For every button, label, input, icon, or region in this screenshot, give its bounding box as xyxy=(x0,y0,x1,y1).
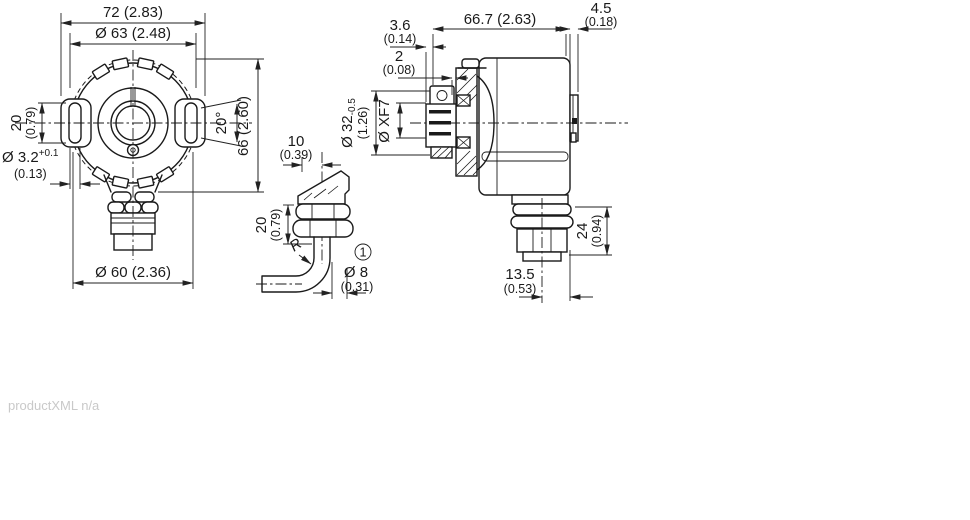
top-screw xyxy=(462,59,479,68)
dim-gap-in: (0.08) xyxy=(383,63,416,77)
technical-drawing-page: 72 (2.83) Ø 63 (2.48) 20 (0.79) Ø 3.2+0.… xyxy=(0,0,970,520)
encoder-body-side xyxy=(479,58,570,195)
dim-cable-dia-in: (0.31) xyxy=(341,280,374,294)
dim-connector-height-mm: 24 xyxy=(574,223,591,240)
dim-connector-height: 24 (0.94) xyxy=(569,207,612,255)
dim-slot-width-in: (0.13) xyxy=(14,167,47,181)
side-view: 66.7 (2.63) 4.5 (0.18) 3.6 (0.14) 2 (0.0… xyxy=(339,0,628,303)
dim-slot-angle-label: 20° xyxy=(213,112,230,135)
dim-slot-length-mm: 20 xyxy=(8,115,25,132)
dim-flange-circle-label: Ø 63 (2.48) xyxy=(95,25,171,42)
dim-cable-offset: 10 (0.39) xyxy=(280,133,341,172)
callout-1-marker: 1 xyxy=(355,244,371,260)
dim-cable-offset-in: (0.39) xyxy=(280,148,313,162)
dim-overall-height-label: 66 (2.60) xyxy=(235,96,252,156)
dim-bore-dia: Ø XF7 xyxy=(376,99,426,142)
dim-hub-dia-in: (1.26) xyxy=(356,107,370,140)
dim-body-dia-label: Ø 60 (2.36) xyxy=(95,264,171,281)
dim-cable-dia-mm: Ø 8 xyxy=(344,264,368,281)
rear-connector xyxy=(570,95,578,142)
product-xml-note: productXML n/a xyxy=(8,398,99,413)
front-view: 72 (2.83) Ø 63 (2.48) 20 (0.79) Ø 3.2+0.… xyxy=(2,4,264,289)
bearing-bottom xyxy=(457,137,470,148)
dim-rear-depth-in: (0.18) xyxy=(585,15,618,29)
dim-connector-height-in: (0.94) xyxy=(590,215,604,248)
dim-gland-length-in: (0.79) xyxy=(269,209,283,242)
cable-gland-nuts xyxy=(293,204,353,237)
dim-bore-dia-label: Ø XF7 xyxy=(376,99,393,142)
mounting-flange-section xyxy=(456,68,477,176)
callout-1-number: 1 xyxy=(360,246,367,260)
dim-overall-depth-label: 66.7 (2.63) xyxy=(464,11,537,28)
dim-connector-offset-mm: 13.5 xyxy=(505,266,534,283)
cable-bend-detail: R 1 10 (0.39) 20 (0.79) Ø 8 xyxy=(253,133,373,299)
bearing-top xyxy=(457,95,470,106)
bend-radius-leader xyxy=(299,255,311,264)
dim-gap: 2 (0.08) xyxy=(383,48,468,95)
encoder-dimension-drawing: 72 (2.83) Ø 63 (2.48) 20 (0.79) Ø 3.2+0.… xyxy=(0,0,970,520)
bend-radius-label: R xyxy=(287,235,306,255)
dim-connector-offset-in: (0.53) xyxy=(504,282,537,296)
dim-slot-length-in: (0.79) xyxy=(24,107,38,140)
dim-clamp-offset-in: (0.14) xyxy=(384,32,417,46)
dim-gland-length-mm: 20 xyxy=(253,217,270,234)
dim-overall-width-label: 72 (2.83) xyxy=(103,4,163,21)
dim-slot-width-label: Ø 3.2+0.1 xyxy=(2,148,59,166)
shaft-clamp-ring xyxy=(426,86,456,158)
